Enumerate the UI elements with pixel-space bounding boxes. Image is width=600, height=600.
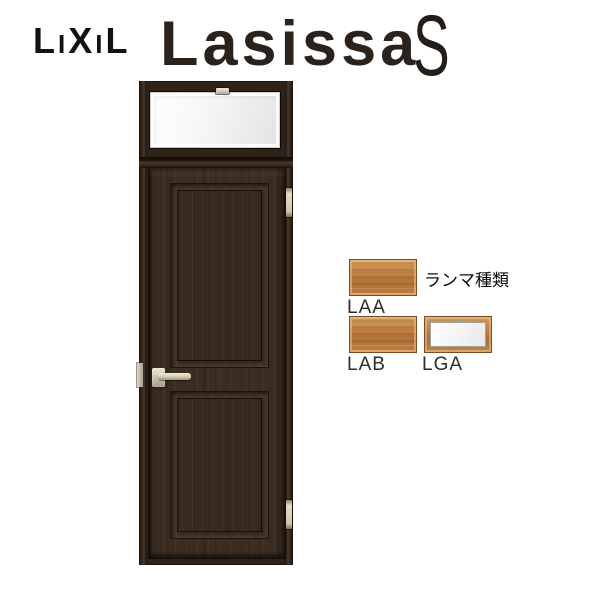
series-letter: S <box>413 3 450 89</box>
door-top-rail <box>149 168 285 183</box>
swatch-lga-glass <box>424 316 492 353</box>
door-upper-panel <box>170 183 269 368</box>
lixil-logo: LIXIL <box>33 23 130 59</box>
transom-divider <box>139 157 293 168</box>
transom-latch-icon <box>216 88 229 94</box>
door-latch-plate <box>137 363 143 387</box>
door-hinge-bottom-icon <box>286 500 292 529</box>
transom-window <box>147 89 285 152</box>
door-slab <box>148 168 286 559</box>
door-lower-panel <box>170 391 269 539</box>
transom-glass <box>150 92 280 148</box>
lixil-letter: X <box>68 20 95 61</box>
door-hinge-top-icon <box>286 188 292 217</box>
lixil-letter: I <box>95 29 105 59</box>
lixil-letter: L <box>105 20 130 61</box>
swatch-lga-label: LGA <box>422 355 463 374</box>
swatch-lab-wood <box>349 316 417 353</box>
swatch-lga-latch-icon <box>455 320 463 323</box>
door-with-transom <box>139 81 293 565</box>
swatch-lab-label: LAB <box>347 355 386 374</box>
lixil-letter: L <box>33 20 58 61</box>
swatch-laa-wood <box>349 259 417 296</box>
lixil-letter: I <box>58 29 68 59</box>
product-image: LIXIL Lasissa S LAA ランマ種類 LAB <box>0 0 600 600</box>
swatch-laa-label: LAA <box>347 298 386 317</box>
product-name: Lasissa <box>160 13 419 76</box>
annotation-title: ランマ種類 <box>424 272 509 291</box>
door-handle-lever-icon <box>158 373 191 380</box>
swatch-lga-glass-pane <box>430 322 486 347</box>
